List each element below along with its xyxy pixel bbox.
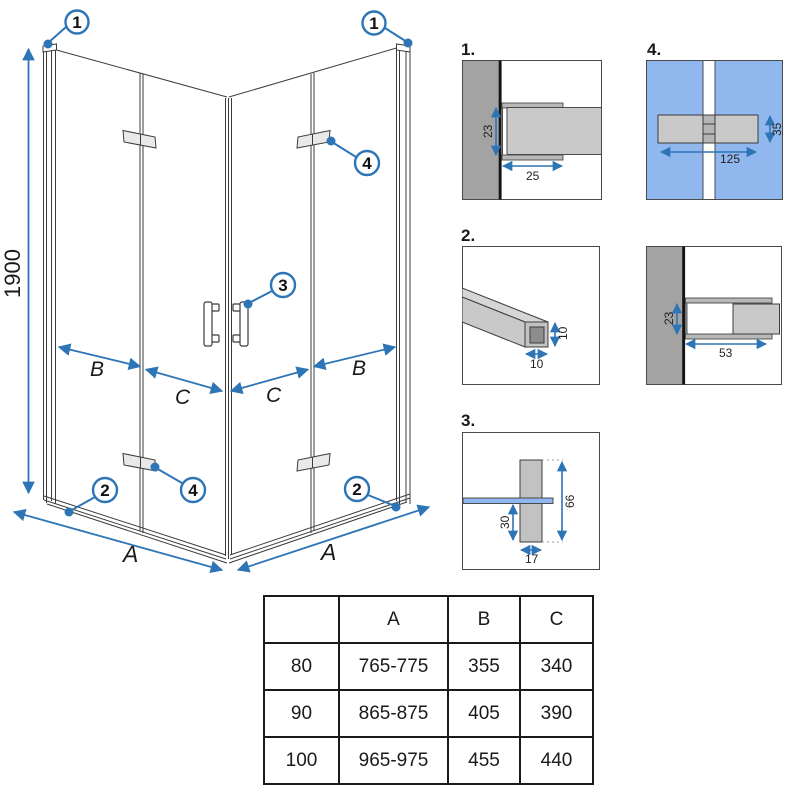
glass-panel <box>507 108 602 155</box>
size-table-header-size <box>264 596 339 643</box>
table-row-100: 100 965-975 455 440 <box>264 737 593 784</box>
detail-3-dim-17: 17 <box>525 552 539 566</box>
hinges <box>123 131 330 472</box>
callout-1-right: 1 <box>369 14 378 33</box>
cell-c: 340 <box>520 643 593 690</box>
detail-4-hinge: 35 125 <box>646 60 783 200</box>
shower-enclosure-drawing: 1900 B C C B A A <box>0 0 450 600</box>
cell-size: 80 <box>264 643 339 690</box>
callout-1-left: 1 <box>72 13 81 32</box>
cell-size: 90 <box>264 690 339 737</box>
size-table-header-c: C <box>520 596 593 643</box>
channel-bottom-lip <box>686 334 773 339</box>
detail-2-dim-10v: 10 <box>556 326 570 340</box>
glass-panel <box>733 304 780 334</box>
callout-3: 3 <box>278 276 287 295</box>
dim-label-1900: 1900 <box>0 249 25 298</box>
detail-1-wall-profile: 23 25 <box>462 60 602 200</box>
detail-2-square-tube: 10 10 <box>462 246 600 385</box>
tube-bore <box>530 327 544 343</box>
table-row-90: 90 865-875 405 390 <box>264 690 593 737</box>
size-table-header-row: A B C <box>264 596 593 643</box>
detail-1-dim-23: 23 <box>481 124 495 138</box>
cell-a: 765-775 <box>339 643 448 690</box>
callout-4-top: 4 <box>362 154 372 173</box>
cell-b: 455 <box>448 737 520 784</box>
dim-line-a-left <box>14 512 222 570</box>
detail-3-handle: 66 30 17 <box>462 432 600 570</box>
wall-edge <box>683 247 686 385</box>
cell-c: 440 <box>520 737 593 784</box>
wall-edge <box>499 61 502 200</box>
cell-a: 865-875 <box>339 690 448 737</box>
dim-label-b-left: B <box>90 358 104 381</box>
detail-4-label: 4. <box>647 40 661 60</box>
size-table-header-a: A <box>339 596 448 643</box>
channel-cavity <box>687 303 733 334</box>
detail-4-dim-35: 35 <box>770 122 783 136</box>
detail-3-dim-30: 30 <box>498 515 512 529</box>
hinge-knuckle <box>703 115 715 143</box>
left-wall-profile <box>43 44 57 504</box>
dim-label-a-right: A <box>319 539 336 565</box>
cell-b: 355 <box>448 643 520 690</box>
detail-5-dim-53: 53 <box>719 346 733 360</box>
channel-top-lip <box>686 298 773 303</box>
dim-label-c-left: C <box>175 386 191 409</box>
detail-4-dim-125: 125 <box>720 152 740 166</box>
right-wall-profile <box>397 44 411 504</box>
cell-b: 405 <box>448 690 520 737</box>
bottom-rail <box>44 494 410 563</box>
dim-label-a-left: A <box>121 541 138 567</box>
product-spec-sheet: 1900 B C C B A A <box>0 0 801 800</box>
cell-a: 965-975 <box>339 737 448 784</box>
callout-4-bottom: 4 <box>188 481 198 500</box>
dim-label-b-right: B <box>352 357 366 380</box>
corner-post <box>226 98 232 559</box>
detail-3-label: 3. <box>461 411 475 431</box>
cell-size: 100 <box>264 737 339 784</box>
callout-2-right: 2 <box>352 480 361 499</box>
callout-2-left: 2 <box>100 481 109 500</box>
detail-3-dim-66: 66 <box>563 494 577 508</box>
callout-leaders <box>48 27 407 511</box>
detail-1-dim-25: 25 <box>526 169 540 183</box>
detail-2-dim-10h: 10 <box>530 357 544 371</box>
profile-bottom-lip <box>502 155 563 160</box>
table-row-80: 80 765-775 355 340 <box>264 643 593 690</box>
detail-5-wall-channel: 23 53 <box>646 246 782 385</box>
cell-c: 390 <box>520 690 593 737</box>
size-table: A B C 80 765-775 355 340 90 865-875 405 … <box>263 595 594 785</box>
glass-panel <box>463 498 553 504</box>
dim-label-c-right: C <box>266 384 282 407</box>
detail-1-label: 1. <box>461 40 475 60</box>
size-table-header-b: B <box>448 596 520 643</box>
detail-2-label: 2. <box>461 226 475 246</box>
detail-5-dim-23: 23 <box>662 311 676 325</box>
